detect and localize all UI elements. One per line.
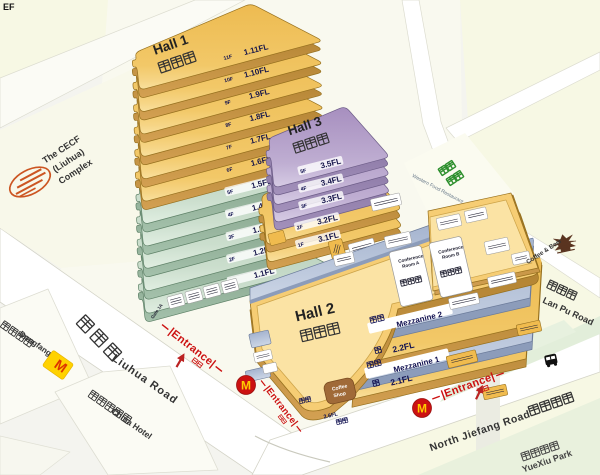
svg-text:EF: EF — [3, 2, 15, 12]
svg-text:M: M — [417, 402, 427, 416]
svg-text:M: M — [241, 379, 251, 393]
